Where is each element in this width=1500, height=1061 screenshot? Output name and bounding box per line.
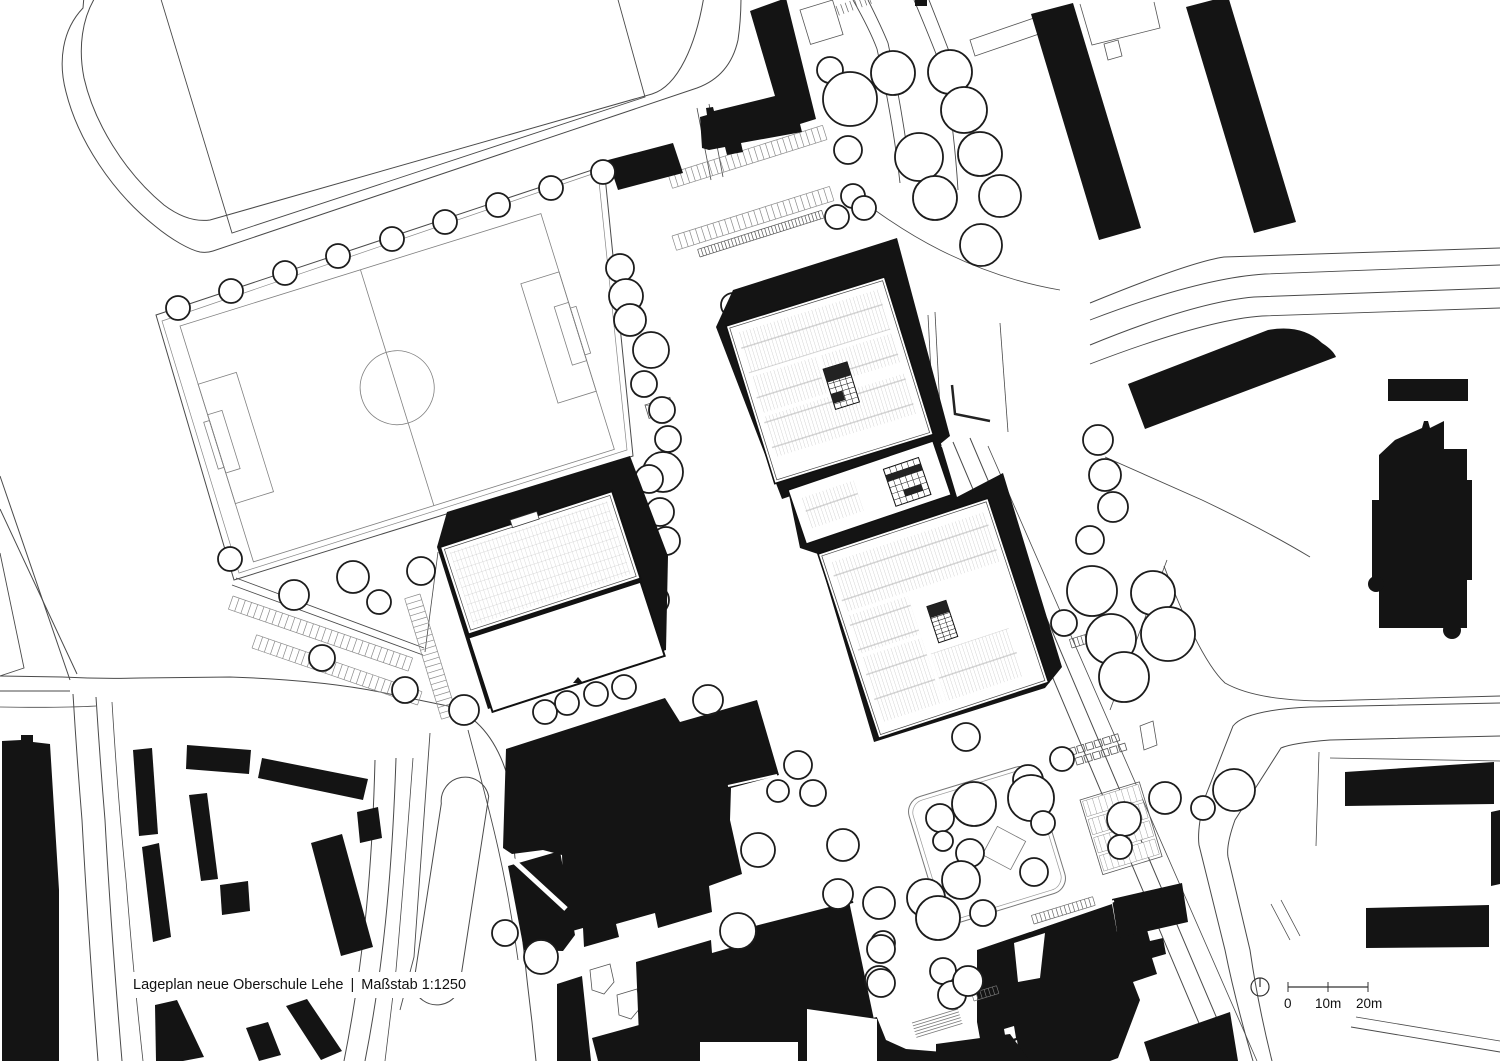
svg-text:Lageplan neue Oberschule Lehe: Lageplan neue Oberschule Lehe | Maßstab … xyxy=(133,977,466,993)
svg-text:20m: 20m xyxy=(1356,996,1382,1011)
svg-text:10m: 10m xyxy=(1315,996,1341,1011)
svg-text:0: 0 xyxy=(1284,996,1292,1011)
